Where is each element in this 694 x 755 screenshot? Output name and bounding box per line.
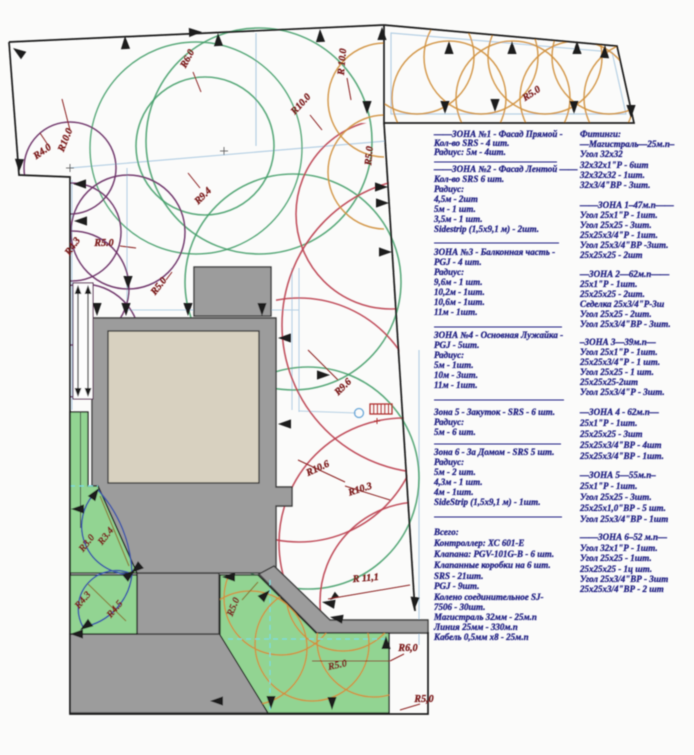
svg-text:4,5м - 2шт: 4,5м - 2шт — [433, 194, 478, 204]
svg-text:Радиус:: Радиус: — [434, 457, 464, 467]
svg-text:Клапанные коробки на 6 шт.: Клапанные коробки на 6 шт. — [433, 560, 551, 570]
svg-text:25х1"Р - 1шт.: 25х1"Р - 1шт. — [579, 279, 637, 289]
svg-text:—ЗОНА 5—55м.п–: —ЗОНА 5—55м.п– — [579, 470, 656, 480]
svg-text:Радиус: 5м - 4шт.: Радиус: 5м - 4шт. — [434, 147, 506, 157]
svg-text:4,3м - 1 шт.: 4,3м - 1 шт. — [433, 477, 483, 487]
svg-text:Угол 32х1"Р - 1шт.: Угол 32х1"Р - 1шт. — [580, 543, 658, 553]
svg-text:——ЗОНА 1–47м.п——: ——ЗОНА 1–47м.п—— — [579, 200, 674, 210]
svg-text:9,6м - 1 шт.: 9,6м - 1 шт. — [434, 277, 483, 287]
svg-text:11м - 1шт.: 11м - 1шт. — [434, 380, 478, 390]
svg-text:4м - 1шт.: 4м - 1шт. — [433, 487, 474, 497]
svg-text:Седелка 25х3/4"Р-3ш: Седелка 25х3/4"Р-3ш — [580, 299, 665, 309]
svg-text:Угол 25х3/4"ВР - 1шт: Угол 25х3/4"ВР - 1шт — [580, 514, 668, 524]
svg-text:Всего:: Всего: — [433, 527, 459, 537]
svg-text:PGJ - 4 шт.: PGJ - 4 шт. — [434, 257, 482, 267]
svg-text:25х25х25 - 2шт: 25х25х25 - 2шт — [579, 250, 643, 260]
svg-text:25х25х25 - 3шт: 25х25х25 - 3шт — [579, 429, 643, 439]
svg-text:Фитинги:: Фитинги: — [580, 129, 621, 139]
svg-text:Магистраль 32мм - 25м.п: Магистраль 32мм - 25м.п — [433, 612, 537, 622]
svg-text:Угол 25х3/4"ВР - 3шт.: Угол 25х3/4"ВР - 3шт. — [580, 319, 671, 329]
svg-text:Контроллер: ХС 601-Е: Контроллер: ХС 601-Е — [433, 538, 524, 548]
svg-text:25х25х3/4"ВР - 4шт: 25х25х3/4"ВР - 4шт — [579, 440, 662, 450]
svg-text:Угол 25х3/4"ВР - 3шт: Угол 25х3/4"ВР - 3шт — [580, 574, 668, 584]
svg-text:ЗОНА №4 - Основная Лужайка -: ЗОНА №4 - Основная Лужайка - — [433, 330, 563, 340]
svg-text:32х3/4"ВР - 3шт.: 32х3/4"ВР - 3шт. — [579, 180, 650, 190]
svg-text:——ЗОНА №2 - Фасад Лентой ——: ——ЗОНА №2 - Фасад Лентой —— — [433, 164, 578, 174]
svg-text:SideStrip (1,5х9,1 м) - 1шт.: SideStrip (1,5х9,1 м) - 1шт. — [434, 497, 541, 507]
svg-text:25х1"Р - 1шт.: 25х1"Р - 1шт. — [579, 418, 637, 428]
svg-text:10,6м - 1шт.: 10,6м - 1шт. — [434, 297, 485, 307]
svg-text:SRS - 21шт.: SRS - 21шт. — [434, 571, 483, 581]
svg-text:5м - 2 шт.: 5м - 2 шт. — [434, 467, 476, 477]
svg-text:25х25х25 - 2шт.: 25х25х25 - 2шт. — [579, 289, 645, 299]
svg-text:Угол 25х25 - 1шт.: Угол 25х25 - 1шт. — [580, 553, 652, 563]
svg-text:10м - 3шт.: 10м - 3шт. — [434, 370, 478, 380]
svg-text:PGJ - 5шт.: PGJ - 5шт. — [434, 340, 479, 350]
svg-text:Радиус:: Радиус: — [434, 417, 464, 427]
svg-text:Угол 25х1"Р - 1шт.: Угол 25х1"Р - 1шт. — [580, 210, 658, 220]
svg-text:—ЗОНА 4 - 62м.п—: —ЗОНА 4 - 62м.п— — [579, 407, 659, 417]
svg-text:Кол-во SRS 6 шт.: Кол-во SRS 6 шт. — [433, 174, 504, 184]
svg-text:R6,0: R6,0 — [397, 643, 417, 654]
svg-text:——ЗОНА 6–52 м.п—: ——ЗОНА 6–52 м.п— — [579, 532, 667, 542]
svg-text:25х25х3/4"ВР - 1шт.: 25х25х3/4"ВР - 1шт. — [579, 451, 664, 461]
svg-text:25х25х3/4"Р - 1шт.: 25х25х3/4"Р - 1шт. — [579, 230, 658, 240]
svg-text:ЗОНА №3 - Балконная часть -: ЗОНА №3 - Балконная часть - — [433, 247, 555, 257]
svg-text:11м - 1шт.: 11м - 1шт. — [434, 307, 478, 317]
svg-text:25х1"Р - 1шт.: 25х1"Р - 1шт. — [579, 481, 637, 491]
svg-text:25х25х25-2шт: 25х25х25-2шт — [579, 377, 638, 387]
svg-text:25х25х3/4"Р - 1 шт.: 25х25х3/4"Р - 1 шт. — [579, 357, 660, 367]
svg-text:Угол 25х3/4"ВР -3шт.: Угол 25х3/4"ВР -3шт. — [580, 240, 668, 250]
svg-text:Угол 25х25 - 1 шт.: Угол 25х25 - 1 шт. — [580, 367, 654, 377]
svg-text:R5,0: R5,0 — [413, 694, 433, 705]
svg-text:32х32х32 - 1шт.: 32х32х32 - 1шт. — [579, 170, 645, 180]
svg-text:Угол 25х1"Р - 1шт.: Угол 25х1"Р - 1шт. — [580, 347, 658, 357]
svg-text:3,5м - 1 шт.: 3,5м - 1 шт. — [433, 214, 483, 224]
svg-text:Кабель 0,5мм х8 - 25м.п: Кабель 0,5мм х8 - 25м.п — [433, 632, 529, 642]
svg-text:7506 - 30шт.: 7506 - 30шт. — [434, 602, 485, 612]
svg-text:–ЗОНА 3—39м.п—: –ЗОНА 3—39м.п— — [579, 337, 656, 347]
svg-text:Зона 5 - Закуток - SRS - 6 шт.: Зона 5 - Закуток - SRS - 6 шт. — [433, 407, 555, 417]
svg-text:10,2м - 1шт.: 10,2м - 1шт. — [434, 287, 485, 297]
svg-text:Зона 6 - За Домом - SRS 5 шт.: Зона 6 - За Домом - SRS 5 шт. — [433, 447, 554, 457]
svg-text:5м - 1шт.: 5м - 1шт. — [434, 360, 474, 370]
svg-text:5м - 6 шт.: 5м - 6 шт. — [434, 427, 476, 437]
svg-text:Угол 25х25 - 2шт.: Угол 25х25 - 2шт. — [580, 309, 652, 319]
svg-text:Линия 25мм - 330м.п: Линия 25мм - 330м.п — [433, 622, 518, 632]
svg-text:25х25х3/4"ВР - 2 шт: 25х25х3/4"ВР - 2 шт — [579, 584, 664, 594]
svg-text:Колено соединительное SJ-: Колено соединительное SJ- — [433, 592, 544, 602]
svg-text:Радиус:: Радиус: — [434, 184, 464, 194]
svg-text:R5.0: R5.0 — [363, 146, 376, 167]
svg-text:—Магистраль—25м.п–: —Магистраль—25м.п– — [579, 139, 675, 149]
svg-text:Угол 32х32: Угол 32х32 — [580, 149, 623, 159]
svg-text:Sidestrip (1,5х9,1 м) - 2шт.: Sidestrip (1,5х9,1 м) - 2шт. — [434, 224, 539, 234]
svg-text:5м - 1 шт.: 5м - 1 шт. — [434, 204, 476, 214]
svg-text:—ЗОНА 2—62м.п——: —ЗОНА 2—62м.п—— — [579, 269, 669, 279]
svg-text:Клапана: PGV-101G-B - 6 шт.: Клапана: PGV-101G-B - 6 шт. — [433, 549, 554, 559]
svg-text:Радиус:: Радиус: — [434, 350, 464, 360]
svg-text:25х25х25 - 1ц шт.: 25х25х25 - 1ц шт. — [579, 564, 652, 574]
svg-text:32х32х1"Р - 6шт: 32х32х1"Р - 6шт — [579, 160, 649, 170]
svg-text:R5.0: R5.0 — [93, 238, 113, 249]
svg-text:Радиус:: Радиус: — [434, 267, 464, 277]
svg-text:Угол 25х3/4"Р - 3шт.: Угол 25х3/4"Р - 3шт. — [580, 387, 665, 397]
svg-text:R 11,1: R 11,1 — [351, 572, 379, 585]
svg-text:25х25х1,0"ВР - 5 шт.: 25х25х1,0"ВР - 5 шт. — [579, 503, 666, 513]
svg-text:Угол 25х25 - 3шт.: Угол 25х25 - 3шт. — [580, 220, 652, 230]
svg-text:PGJ - 9шт.: PGJ - 9шт. — [434, 581, 479, 591]
svg-text:Угол 25х25 - 3шт.: Угол 25х25 - 3шт. — [580, 492, 652, 502]
